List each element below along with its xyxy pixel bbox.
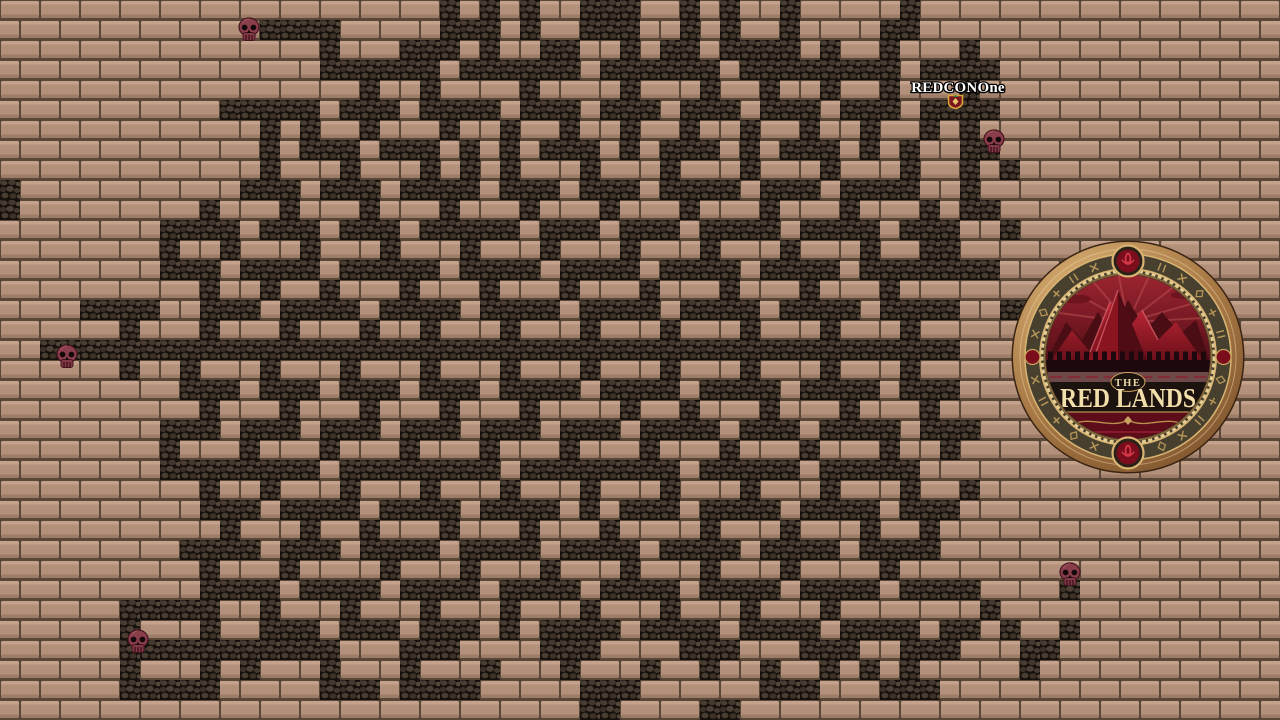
maze-path-tile <box>460 380 480 400</box>
maze-path-tile <box>760 660 780 680</box>
maze-path-tile <box>640 380 660 400</box>
maze-path-tile <box>760 420 780 440</box>
maze-path-tile <box>240 500 260 520</box>
maze-path-tile <box>200 200 220 220</box>
maze-path-tile <box>280 620 300 640</box>
maze-path-tile <box>800 300 820 320</box>
maze-path-tile <box>620 400 640 420</box>
maze-path-tile <box>360 80 380 100</box>
maze-path-tile <box>480 220 500 240</box>
maze-path-tile <box>640 300 660 320</box>
maze-path-tile <box>860 580 880 600</box>
maze-path-tile <box>260 120 280 140</box>
logo-title: RED LANDS <box>1060 383 1196 413</box>
maze-path-tile <box>660 420 680 440</box>
maze-path-tile <box>520 400 540 420</box>
maze-path-tile <box>180 380 200 400</box>
maze-path-tile <box>280 260 300 280</box>
maze-path-tile <box>620 100 640 120</box>
maze-path-tile <box>360 680 380 700</box>
maze-path-tile <box>980 600 1000 620</box>
maze-path-tile <box>320 140 340 160</box>
maze-path-tile <box>840 200 860 220</box>
maze-path-tile <box>360 540 380 560</box>
maze-path-tile <box>520 100 540 120</box>
maze-path-tile <box>400 140 420 160</box>
maze-path-tile <box>600 260 620 280</box>
maze-path-tile <box>420 620 440 640</box>
maze-path-tile <box>560 220 580 240</box>
maze-path-tile <box>540 40 560 60</box>
maze-path-tile <box>200 580 220 600</box>
maze-path-tile <box>180 540 200 560</box>
maze-path-tile <box>400 460 420 480</box>
maze-path-tile <box>720 100 740 120</box>
maze-path-tile <box>0 180 20 200</box>
maze-path-tile <box>880 40 900 60</box>
maze-path-tile <box>260 340 280 360</box>
maze-path-tile <box>180 340 200 360</box>
maze-path-tile <box>860 140 880 160</box>
maze-path-tile <box>240 340 260 360</box>
maze-path-tile <box>940 380 960 400</box>
maze-path-tile <box>200 340 220 360</box>
maze-path-tile <box>500 160 520 180</box>
maze-path-tile <box>340 160 360 180</box>
maze-path-tile <box>380 220 400 240</box>
logo-side-medallion-right <box>1216 350 1231 365</box>
maze-path-tile <box>420 140 440 160</box>
maze-path-tile <box>620 40 640 60</box>
maze-path-tile <box>400 40 420 60</box>
maze-path-tile <box>780 60 800 80</box>
maze-path-tile <box>560 140 580 160</box>
maze-path-tile <box>1020 640 1040 660</box>
maze-path-tile <box>300 120 320 140</box>
maze-path-tile <box>380 380 400 400</box>
maze-path-tile <box>340 380 360 400</box>
maze-path-tile <box>340 340 360 360</box>
maze-path-tile <box>860 240 880 260</box>
maze-path-tile <box>1020 660 1040 680</box>
maze-path-tile <box>520 520 540 540</box>
maze-path-tile <box>840 580 860 600</box>
maze-path-tile <box>500 180 520 200</box>
maze-path-tile <box>940 260 960 280</box>
maze-path-tile <box>900 460 920 480</box>
maze-path-tile <box>840 180 860 200</box>
maze-path-tile <box>740 620 760 640</box>
maze-path-tile <box>880 440 900 460</box>
maze-path-tile <box>520 380 540 400</box>
maze-path-tile <box>220 640 240 660</box>
maze-path-tile <box>900 660 920 680</box>
maze-path-tile <box>580 500 600 520</box>
maze-path-tile <box>580 360 600 380</box>
maze-path-tile <box>360 620 380 640</box>
maze-path-tile <box>300 240 320 260</box>
maze-path-tile <box>800 220 820 240</box>
maze-path-tile <box>320 540 340 560</box>
maze-path-tile <box>600 700 620 720</box>
maze-path-tile <box>300 640 320 660</box>
maze-path-tile <box>900 180 920 200</box>
maze-path-tile <box>500 120 520 140</box>
maze-path-tile <box>760 580 780 600</box>
maze-path-tile <box>720 540 740 560</box>
maze-path-tile <box>900 480 920 500</box>
maze-path-tile <box>700 80 720 100</box>
maze-path-tile <box>1000 620 1020 640</box>
maze-path-tile <box>460 680 480 700</box>
maze-path-tile <box>620 140 640 160</box>
maze-path-tile <box>760 400 780 420</box>
maze-path-tile <box>600 380 620 400</box>
maze-path-tile <box>560 620 580 640</box>
maze-path-tile <box>920 300 940 320</box>
maze-path-tile <box>420 680 440 700</box>
maze-path-tile <box>200 400 220 420</box>
maze-path-tile <box>280 380 300 400</box>
maze-path-tile <box>420 420 440 440</box>
maze-path-tile <box>440 680 460 700</box>
player-name-label: REDCONOne <box>911 80 1005 96</box>
maze-path-tile <box>460 620 480 640</box>
maze-path-tile <box>340 100 360 120</box>
maze-path-tile <box>800 260 820 280</box>
maze-path-tile <box>780 680 800 700</box>
maze-path-tile <box>760 380 780 400</box>
maze-path-tile <box>360 220 380 240</box>
maze-path-tile <box>360 520 380 540</box>
maze-path-tile <box>700 180 720 200</box>
maze-path-tile <box>280 420 300 440</box>
maze-path-tile <box>840 500 860 520</box>
maze-path-tile <box>200 260 220 280</box>
maze-path-tile <box>740 140 760 160</box>
maze-path-tile <box>260 220 280 240</box>
maze-path-tile <box>360 60 380 80</box>
maze-path-tile <box>700 660 720 680</box>
maze-path-tile <box>420 100 440 120</box>
maze-path-tile <box>740 580 760 600</box>
maze-path-tile <box>740 600 760 620</box>
maze-path-tile <box>720 640 740 660</box>
maze-path-tile <box>220 300 240 320</box>
maze-path-tile <box>500 580 520 600</box>
maze-path-tile <box>640 340 660 360</box>
maze-path-tile <box>400 440 420 460</box>
maze-path-tile <box>440 100 460 120</box>
maze-path-tile <box>180 360 200 380</box>
maze-path-tile <box>800 620 820 640</box>
maze-path-tile <box>740 160 760 180</box>
maze-path-tile <box>840 460 860 480</box>
maze-path-tile <box>420 260 440 280</box>
maze-path-tile <box>620 500 640 520</box>
maze-path-tile <box>560 420 580 440</box>
maze-path-tile <box>560 440 580 460</box>
maze-path-tile <box>720 0 740 20</box>
maze-path-tile <box>740 420 760 440</box>
maze-path-tile <box>340 500 360 520</box>
maze-path-tile <box>960 140 980 160</box>
maze-path-tile <box>820 660 840 680</box>
maze-path-tile <box>640 660 660 680</box>
maze-path-tile <box>380 100 400 120</box>
maze-path-tile <box>420 540 440 560</box>
maze-path-tile <box>200 540 220 560</box>
maze-path-tile <box>380 500 400 520</box>
maze-path-tile <box>880 280 900 300</box>
maze-path-tile <box>320 660 340 680</box>
maze-path-tile <box>120 660 140 680</box>
maze-path-tile <box>740 320 760 340</box>
maze-path-tile <box>500 320 520 340</box>
maze-path-tile <box>680 140 700 160</box>
maze-path-tile <box>200 460 220 480</box>
maze-path-tile <box>600 180 620 200</box>
maze-path-tile <box>700 300 720 320</box>
maze-path-tile <box>640 220 660 240</box>
maze-path-tile <box>380 460 400 480</box>
maze-path-tile <box>880 260 900 280</box>
maze-path-tile <box>260 600 280 620</box>
maze-path-tile <box>540 220 560 240</box>
maze-path-tile <box>500 340 520 360</box>
maze-path-tile <box>620 80 640 100</box>
maze-path-tile <box>760 680 780 700</box>
maze-path-tile <box>760 500 780 520</box>
maze-path-tile <box>240 440 260 460</box>
maze-path-tile <box>900 360 920 380</box>
maze-path-tile <box>600 20 620 40</box>
maze-path-tile <box>780 460 800 480</box>
maze-path-tile <box>720 260 740 280</box>
maze-path-tile <box>780 260 800 280</box>
maze-path-tile <box>960 40 980 60</box>
maze-path-tile <box>440 0 460 20</box>
maze-path-tile <box>700 460 720 480</box>
maze-path-tile <box>640 100 660 120</box>
maze-path-tile <box>460 260 480 280</box>
maze-path-tile <box>700 140 720 160</box>
maze-path-tile <box>820 380 840 400</box>
maze-path-tile <box>280 540 300 560</box>
player-marker[interactable] <box>949 95 963 109</box>
maze-path-tile <box>620 300 640 320</box>
maze-path-tile <box>540 240 560 260</box>
maze-path-tile <box>420 300 440 320</box>
maze-path-tile <box>460 100 480 120</box>
maze-path-tile <box>680 100 700 120</box>
maze-path-tile <box>440 500 460 520</box>
maze-path-tile <box>520 0 540 20</box>
maze-path-tile <box>520 200 540 220</box>
maze-path-tile <box>200 560 220 580</box>
maze-path-tile <box>940 340 960 360</box>
maze-path-tile <box>880 460 900 480</box>
maze-path-tile <box>620 120 640 140</box>
maze-path-tile <box>260 480 280 500</box>
maze-path-tile <box>900 140 920 160</box>
maze-path-tile <box>920 540 940 560</box>
maze-path-tile <box>880 680 900 700</box>
maze-path-tile <box>500 620 520 640</box>
maze-path-tile <box>580 420 600 440</box>
maze-path-tile <box>320 300 340 320</box>
maze-path-tile <box>420 600 440 620</box>
maze-path-tile <box>340 60 360 80</box>
maze-path-tile <box>160 240 180 260</box>
maze-path-tile <box>780 300 800 320</box>
maze-path-tile <box>480 260 500 280</box>
maze-path-tile <box>720 460 740 480</box>
maze-path-tile <box>760 220 780 240</box>
maze-path-tile <box>120 360 140 380</box>
maze-path-tile <box>300 260 320 280</box>
maze-path-tile <box>580 540 600 560</box>
maze-path-tile <box>660 340 680 360</box>
maze-path-tile <box>480 440 500 460</box>
maze-path-tile <box>440 20 460 40</box>
maze-path-tile <box>560 120 580 140</box>
maze-path-tile <box>440 220 460 240</box>
maze-path-tile <box>320 680 340 700</box>
maze-path-tile <box>820 500 840 520</box>
maze-path-tile <box>260 140 280 160</box>
maze-path-tile <box>200 220 220 240</box>
maze-path-tile <box>240 540 260 560</box>
maze-path-tile <box>220 460 240 480</box>
maze-path-tile <box>780 540 800 560</box>
maze-path-tile <box>900 260 920 280</box>
maze-path-tile <box>360 400 380 420</box>
maze-path-tile <box>620 0 640 20</box>
maze-path-tile <box>740 360 760 380</box>
maze-path-tile <box>840 60 860 80</box>
maze-path-tile <box>720 380 740 400</box>
maze-path-tile <box>780 560 800 580</box>
maze-path-tile <box>200 300 220 320</box>
maze-path-tile <box>740 480 760 500</box>
maze-path-tile <box>980 60 1000 80</box>
maze-path-tile <box>600 540 620 560</box>
maze-path-tile <box>940 300 960 320</box>
maze-path-tile <box>440 640 460 660</box>
maze-path-tile <box>400 300 420 320</box>
maze-path-tile <box>820 340 840 360</box>
maze-path-tile <box>680 180 700 200</box>
maze-path-tile <box>460 20 480 40</box>
maze-path-tile <box>960 180 980 200</box>
maze-path-tile <box>800 640 820 660</box>
maze-path-tile <box>740 340 760 360</box>
maze-path-tile <box>600 340 620 360</box>
maze-path-tile <box>460 340 480 360</box>
maze-path-tile <box>400 420 420 440</box>
game-canvas[interactable]: REDCONOne <box>0 0 1280 720</box>
game-screen: REDCONOne <box>0 0 1280 720</box>
maze-path-tile <box>1060 620 1080 640</box>
maze-path-tile <box>540 380 560 400</box>
maze-path-tile <box>360 460 380 480</box>
maze-path-tile <box>620 560 640 580</box>
maze-path-tile <box>700 640 720 660</box>
maze-path-tile <box>680 420 700 440</box>
maze-path-tile <box>280 180 300 200</box>
maze-path-tile <box>500 260 520 280</box>
maze-path-tile <box>800 500 820 520</box>
maze-path-tile <box>260 180 280 200</box>
maze-path-tile <box>600 420 620 440</box>
maze-path-tile <box>700 220 720 240</box>
maze-path-tile <box>400 340 420 360</box>
maze-path-tile <box>640 440 660 460</box>
maze-path-tile <box>620 60 640 80</box>
maze-path-tile <box>720 580 740 600</box>
maze-path-tile <box>640 500 660 520</box>
maze-path-tile <box>520 500 540 520</box>
maze-path-tile <box>820 40 840 60</box>
maze-path-tile <box>620 380 640 400</box>
maze-path-tile <box>600 680 620 700</box>
logo-gem-bottom <box>1113 438 1144 469</box>
maze-path-tile <box>160 640 180 660</box>
maze-path-tile <box>1000 160 1020 180</box>
maze-path-tile <box>400 280 420 300</box>
maze-path-tile <box>980 100 1000 120</box>
maze-path-tile <box>500 300 520 320</box>
maze-path-tile <box>560 100 580 120</box>
maze-path-tile <box>940 580 960 600</box>
maze-path-tile <box>340 600 360 620</box>
maze-path-tile <box>780 520 800 540</box>
maze-path-tile <box>160 340 180 360</box>
maze-path-tile <box>780 40 800 60</box>
maze-path-tile <box>920 60 940 80</box>
maze-path-tile <box>680 20 700 40</box>
maze-path-tile <box>680 120 700 140</box>
maze-path-tile <box>660 380 680 400</box>
maze-path-tile <box>920 500 940 520</box>
maze-path-tile <box>180 680 200 700</box>
maze-path-tile <box>780 180 800 200</box>
maze-path-tile <box>720 180 740 200</box>
maze-path-tile <box>660 460 680 480</box>
maze-path-tile <box>900 620 920 640</box>
maze-path-tile <box>300 20 320 40</box>
maze-path-tile <box>940 220 960 240</box>
maze-path-tile <box>400 60 420 80</box>
maze-path-tile <box>700 580 720 600</box>
maze-path-tile <box>460 560 480 580</box>
maze-path-tile <box>940 420 960 440</box>
maze-path-tile <box>700 420 720 440</box>
maze-path-tile <box>260 640 280 660</box>
maze-path-tile <box>420 640 440 660</box>
maze-path-tile <box>380 240 400 260</box>
maze-path-tile <box>500 480 520 500</box>
maze-path-tile <box>480 20 500 40</box>
maze-path-tile <box>800 140 820 160</box>
maze-path-tile <box>520 460 540 480</box>
maze-path-tile <box>520 300 540 320</box>
maze-path-tile <box>360 100 380 120</box>
logo-gem-top <box>1113 246 1144 277</box>
maze-path-tile <box>560 660 580 680</box>
maze-path-tile <box>540 100 560 120</box>
